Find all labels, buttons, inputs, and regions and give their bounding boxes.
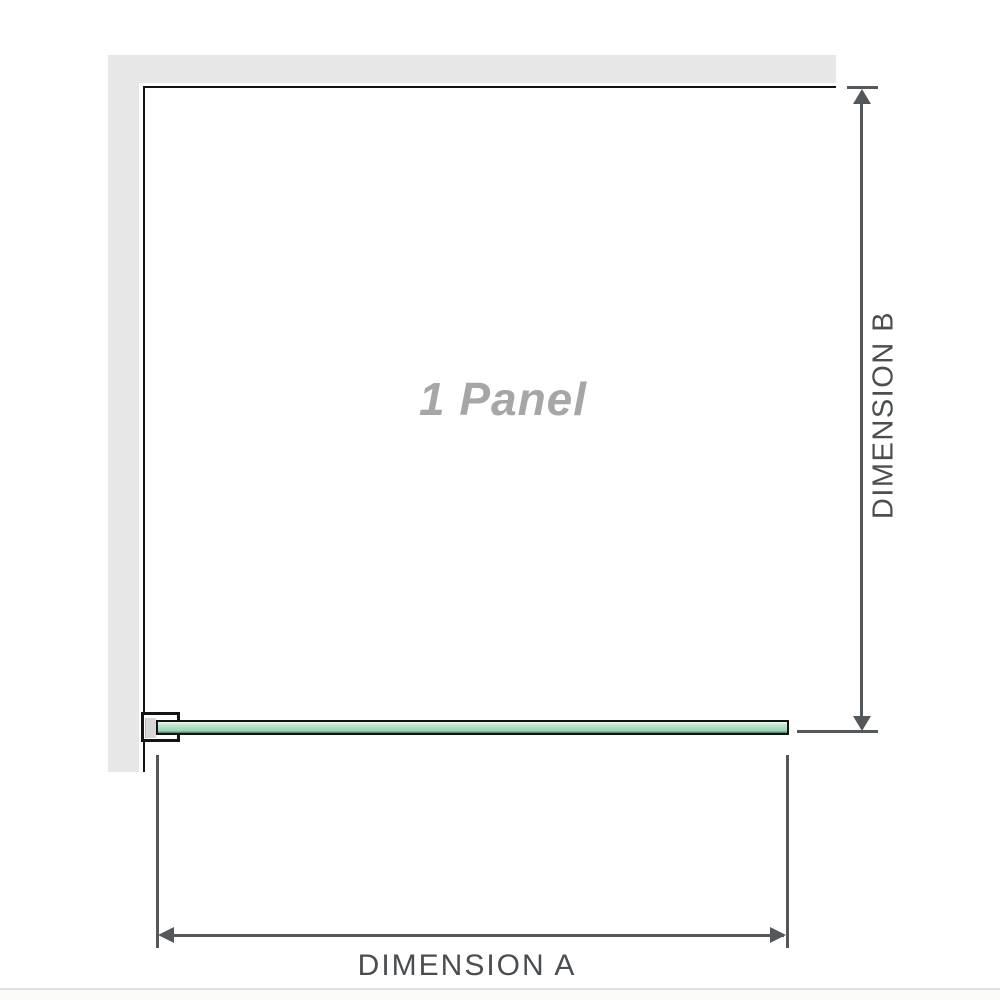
dimension-a-line — [162, 934, 784, 937]
dimension-b-label: DIMENSION B — [868, 311, 901, 519]
arrow-right-icon — [770, 927, 786, 943]
dimension-a-label: DIMENSION A — [358, 949, 577, 983]
wall-left — [108, 55, 139, 772]
panel-label: 1 Panel — [419, 372, 587, 426]
arrow-left-icon — [158, 927, 174, 943]
dimension-a-left-extension — [156, 755, 159, 948]
wall-top — [108, 55, 836, 83]
dimension-b-line — [860, 92, 863, 722]
panel-outline — [143, 86, 836, 772]
arrow-down-icon — [853, 716, 871, 731]
diagram-canvas: 1 Panel DIMENSION B DIMENSION A — [0, 0, 1000, 1000]
arrow-up-icon — [853, 89, 871, 104]
glass-panel — [156, 720, 789, 735]
dimension-a-right-extension — [786, 755, 789, 948]
bottom-strip — [0, 990, 1000, 1000]
wall-bracket-plate — [145, 718, 156, 738]
